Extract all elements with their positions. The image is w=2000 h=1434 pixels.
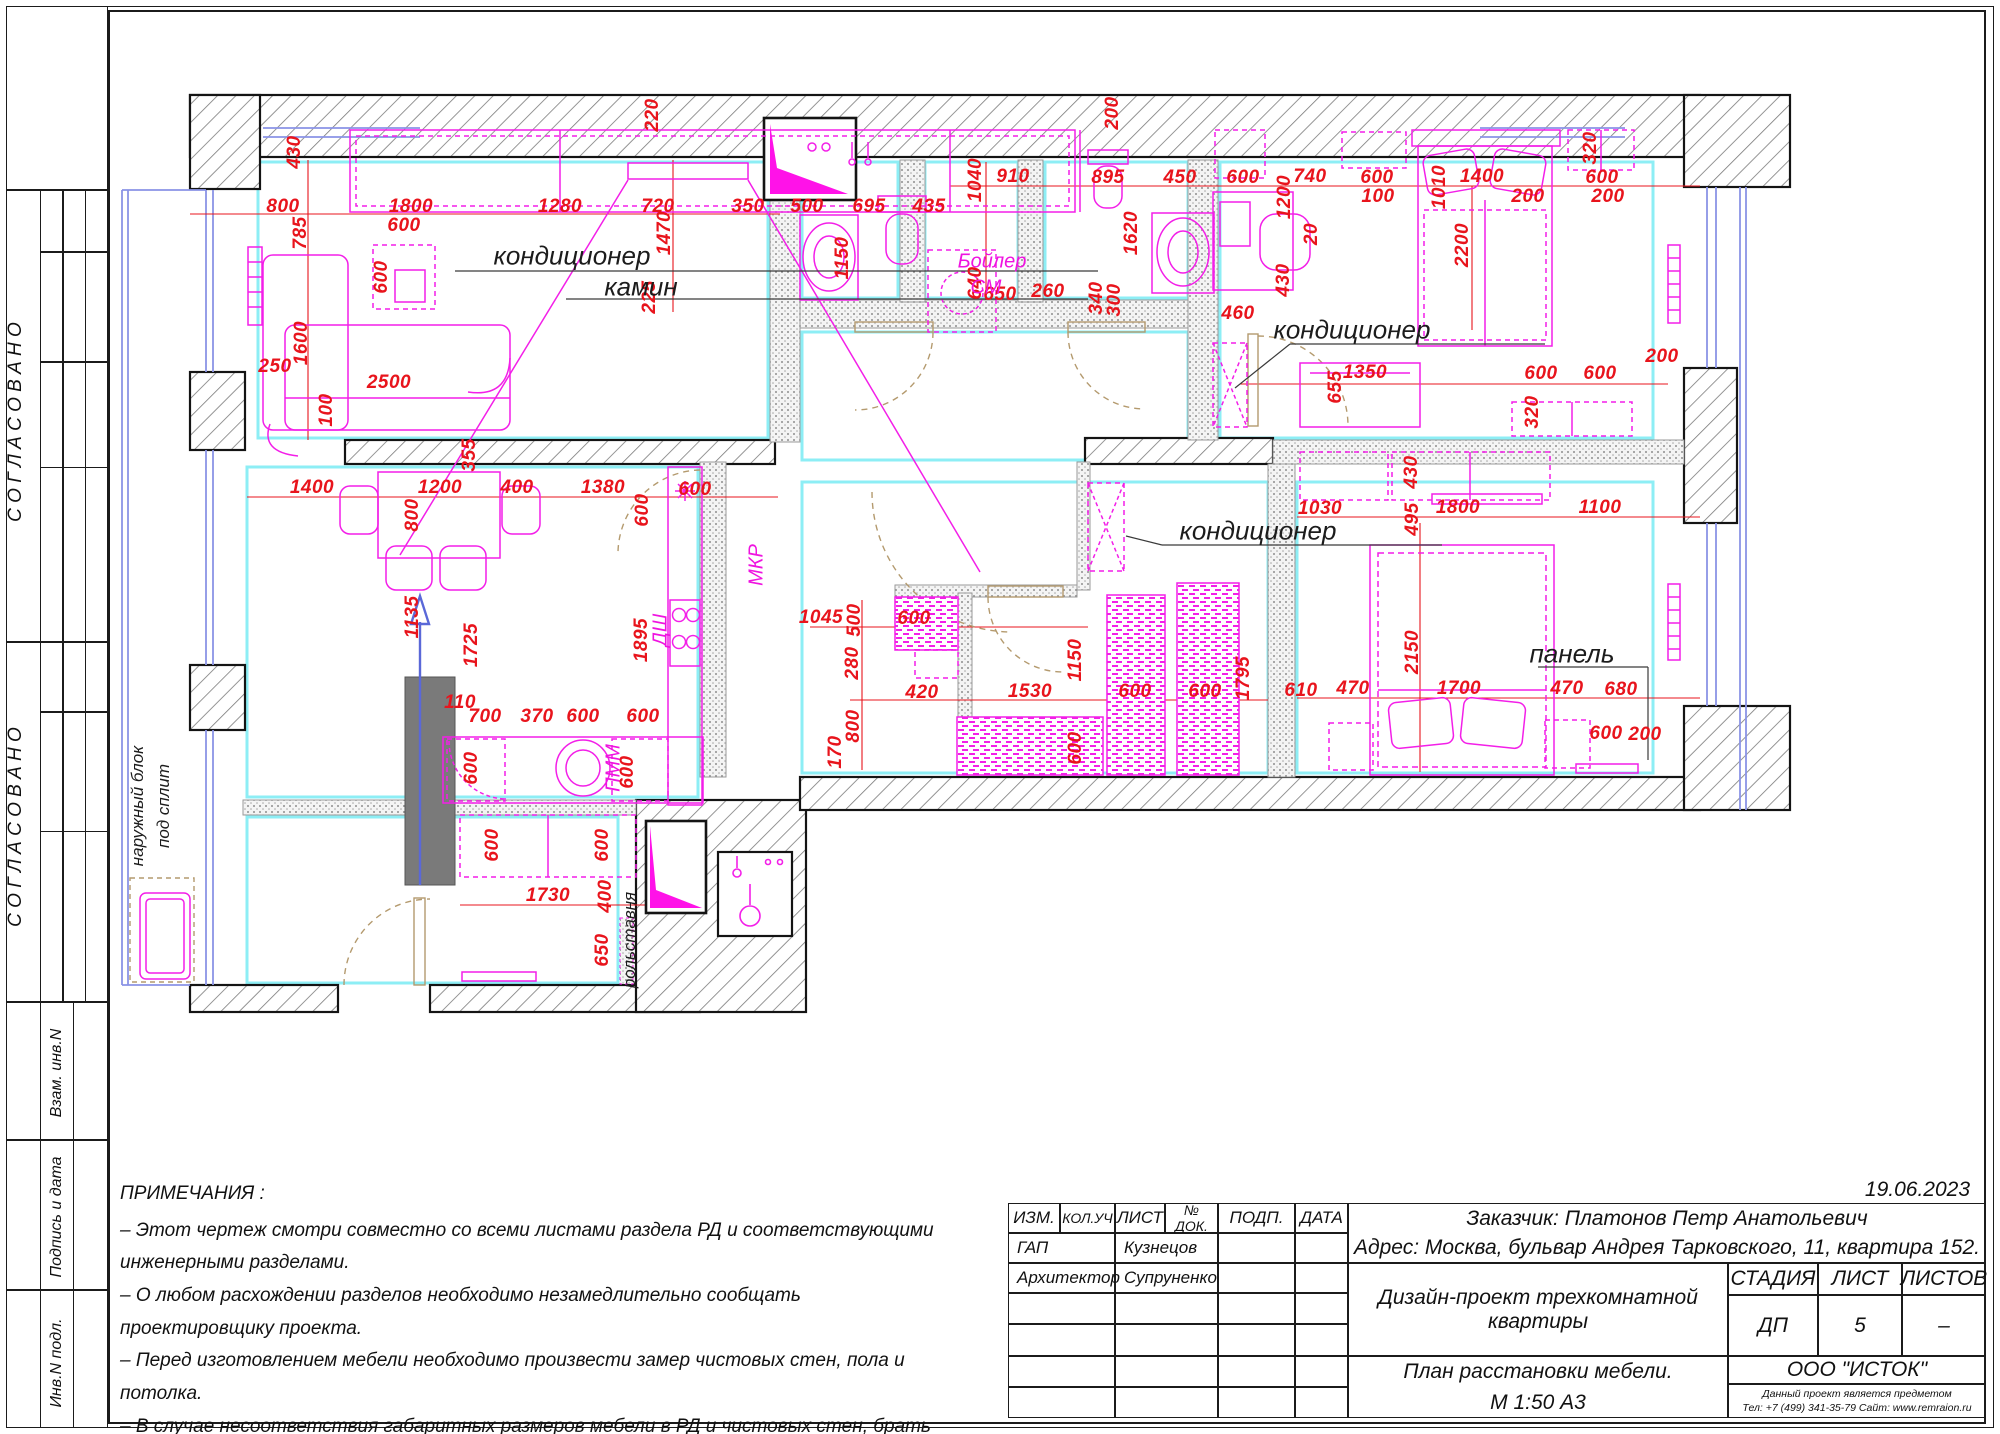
dimension-label: 430 bbox=[284, 135, 306, 168]
dimension-label: 1700 bbox=[1437, 678, 1481, 700]
dimension-label: 680 bbox=[1604, 679, 1637, 701]
date-label: 19.06.2023 bbox=[1865, 1178, 1970, 1202]
callout-label: ДШ bbox=[650, 614, 673, 647]
dimension-label: 1400 bbox=[290, 477, 334, 499]
dimension-label: 2150 bbox=[1402, 630, 1424, 674]
dimension-label: 450 bbox=[1163, 167, 1196, 189]
dimension-label: 600 bbox=[482, 828, 504, 861]
dimension-label: 600 bbox=[1524, 363, 1557, 385]
dimension-label: 600 bbox=[632, 493, 654, 526]
dimension-label: 2500 bbox=[367, 372, 411, 394]
dimension-label: 600 bbox=[371, 260, 393, 293]
dimension-label: 435 bbox=[912, 196, 945, 218]
dimension-label: 20 bbox=[1301, 223, 1323, 245]
dimension-label: 600 bbox=[461, 751, 483, 784]
dimension-label: 1040 bbox=[965, 158, 987, 202]
dimension-label: 785 bbox=[290, 216, 312, 249]
dimension-label: 1010 bbox=[1429, 165, 1451, 209]
dimension-label: 1730 bbox=[526, 885, 570, 907]
dimension-label: 470 bbox=[1336, 678, 1369, 700]
dimension-label: 800 bbox=[402, 498, 424, 531]
callout-label: под сплит bbox=[154, 764, 174, 848]
callout-label: МКР bbox=[746, 544, 769, 586]
dimension-label: 350 bbox=[731, 196, 764, 218]
notes-block: ПРИМЕЧАНИЯ : – Этот чертеж смотри совмес… bbox=[120, 1178, 950, 1434]
note-item: – О любом расхождении разделов необходим… bbox=[120, 1280, 950, 1345]
dimension-label: 1100 bbox=[1579, 497, 1622, 519]
dimension-label: 700 bbox=[468, 706, 501, 728]
callout-label: камин bbox=[604, 272, 677, 303]
dimension-label: 600 bbox=[1583, 363, 1616, 385]
dimension-label: 280 bbox=[842, 646, 864, 679]
dimension-label: 600 bbox=[1188, 681, 1221, 703]
dimension-label: 420 bbox=[905, 682, 938, 704]
dimension-label: 200 bbox=[1102, 96, 1124, 129]
dimension-label: 500 bbox=[844, 603, 866, 636]
dimension-label: 170 bbox=[825, 735, 847, 768]
dimension-label: 1400 bbox=[1460, 166, 1504, 188]
callout-label: Бойлер bbox=[958, 251, 1027, 274]
dimension-label: 1380 bbox=[581, 477, 625, 499]
callout-label: СМ bbox=[971, 277, 1002, 300]
callout-label: рольставня bbox=[620, 892, 640, 988]
dimension-label: 400 bbox=[595, 879, 617, 912]
dimension-label: 1530 bbox=[1008, 681, 1052, 703]
dimension-label: 220 bbox=[642, 98, 664, 131]
dimension-label: 1150 bbox=[1065, 639, 1087, 682]
dimension-label: 1350 bbox=[1343, 362, 1387, 384]
note-item: – В случае несоответствия габаритных раз… bbox=[120, 1411, 950, 1434]
dimension-label: 1200 bbox=[418, 477, 462, 499]
dimension-label: 355 bbox=[459, 438, 481, 471]
dimension-label: 910 bbox=[996, 166, 1029, 188]
dimension-label: 600 bbox=[1118, 681, 1151, 703]
callout-label: ПММ bbox=[603, 744, 626, 792]
dimension-label: 200 bbox=[1645, 346, 1678, 368]
dimension-label: 200 bbox=[1591, 186, 1624, 208]
dimension-label: 260 bbox=[1031, 281, 1064, 303]
dimension-label: 430 bbox=[1401, 455, 1423, 488]
dimension-label: 250 bbox=[258, 356, 291, 378]
dimension-label: 600 bbox=[897, 608, 930, 630]
dimension-label: 495 bbox=[1402, 502, 1424, 535]
dimension-label: 460 bbox=[1221, 303, 1254, 325]
dimension-label: 1200 bbox=[1274, 175, 1296, 219]
dimension-label: 610 bbox=[1284, 680, 1317, 702]
callout-label: кондиционер bbox=[494, 241, 651, 272]
dimension-label: 600 bbox=[1065, 731, 1087, 764]
dimension-label: 600 bbox=[387, 215, 420, 237]
dimension-label: 430 bbox=[1273, 263, 1295, 296]
dimension-label: 1150 bbox=[832, 237, 854, 280]
dimension-label: 1725 bbox=[461, 623, 483, 667]
dimension-label: 370 bbox=[520, 706, 553, 728]
dimension-label: 655 bbox=[1325, 370, 1347, 403]
dimension-label: 600 bbox=[566, 706, 599, 728]
dimension-label: 100 bbox=[316, 393, 338, 426]
dimension-label: 1795 bbox=[1233, 656, 1255, 700]
dimension-label: 1470 bbox=[654, 211, 676, 255]
drawing-sheet: С О Г Л А С О В А Н О С О Г Л А С О В А … bbox=[0, 0, 2000, 1434]
dimension-label: 300 bbox=[1104, 283, 1126, 316]
dimension-label: 1600 bbox=[291, 321, 313, 365]
dimension-label: 1800 bbox=[1436, 497, 1480, 519]
callout-label: панель bbox=[1529, 639, 1614, 670]
dimension-label: 320 bbox=[1522, 395, 1544, 428]
dimension-label: 200 bbox=[1628, 724, 1661, 746]
dimension-label: 1280 bbox=[538, 196, 582, 218]
dimension-label: 2200 bbox=[1452, 223, 1474, 267]
callout-label: кондиционер bbox=[1274, 315, 1431, 346]
note-item: – Этот чертеж смотри совместно со всеми … bbox=[120, 1215, 950, 1280]
dimension-label: 895 bbox=[1091, 167, 1124, 189]
dimension-label: 650 bbox=[592, 933, 614, 966]
dimension-label: 200 bbox=[1511, 186, 1544, 208]
dimension-label: 600 bbox=[678, 479, 711, 501]
dimension-label: 1135 bbox=[402, 596, 424, 639]
callout-label: кондиционер bbox=[1180, 516, 1337, 547]
note-item: – Перед изготовлением мебели необходимо … bbox=[120, 1345, 950, 1410]
dimension-label: 600 bbox=[592, 828, 614, 861]
dimension-label: 320 bbox=[1580, 131, 1602, 164]
dimension-label: 1620 bbox=[1121, 211, 1143, 255]
notes-title: ПРИМЕЧАНИЯ : bbox=[120, 1178, 950, 1211]
dimension-label: 400 bbox=[500, 477, 533, 499]
dimension-label: 600 bbox=[1589, 723, 1622, 745]
dimension-label: 600 bbox=[626, 706, 659, 728]
dimension-label: 1045 bbox=[799, 607, 843, 629]
callout-label: наружный блок bbox=[128, 746, 148, 866]
dimension-label: 500 bbox=[790, 196, 823, 218]
dimension-label: 695 bbox=[852, 196, 885, 218]
dimension-label: 740 bbox=[1293, 166, 1326, 188]
dimension-label: 470 bbox=[1550, 678, 1583, 700]
dimension-label: 800 bbox=[266, 196, 299, 218]
dimension-label: 100 bbox=[1361, 186, 1394, 208]
dimension-label: 600 bbox=[1226, 167, 1259, 189]
